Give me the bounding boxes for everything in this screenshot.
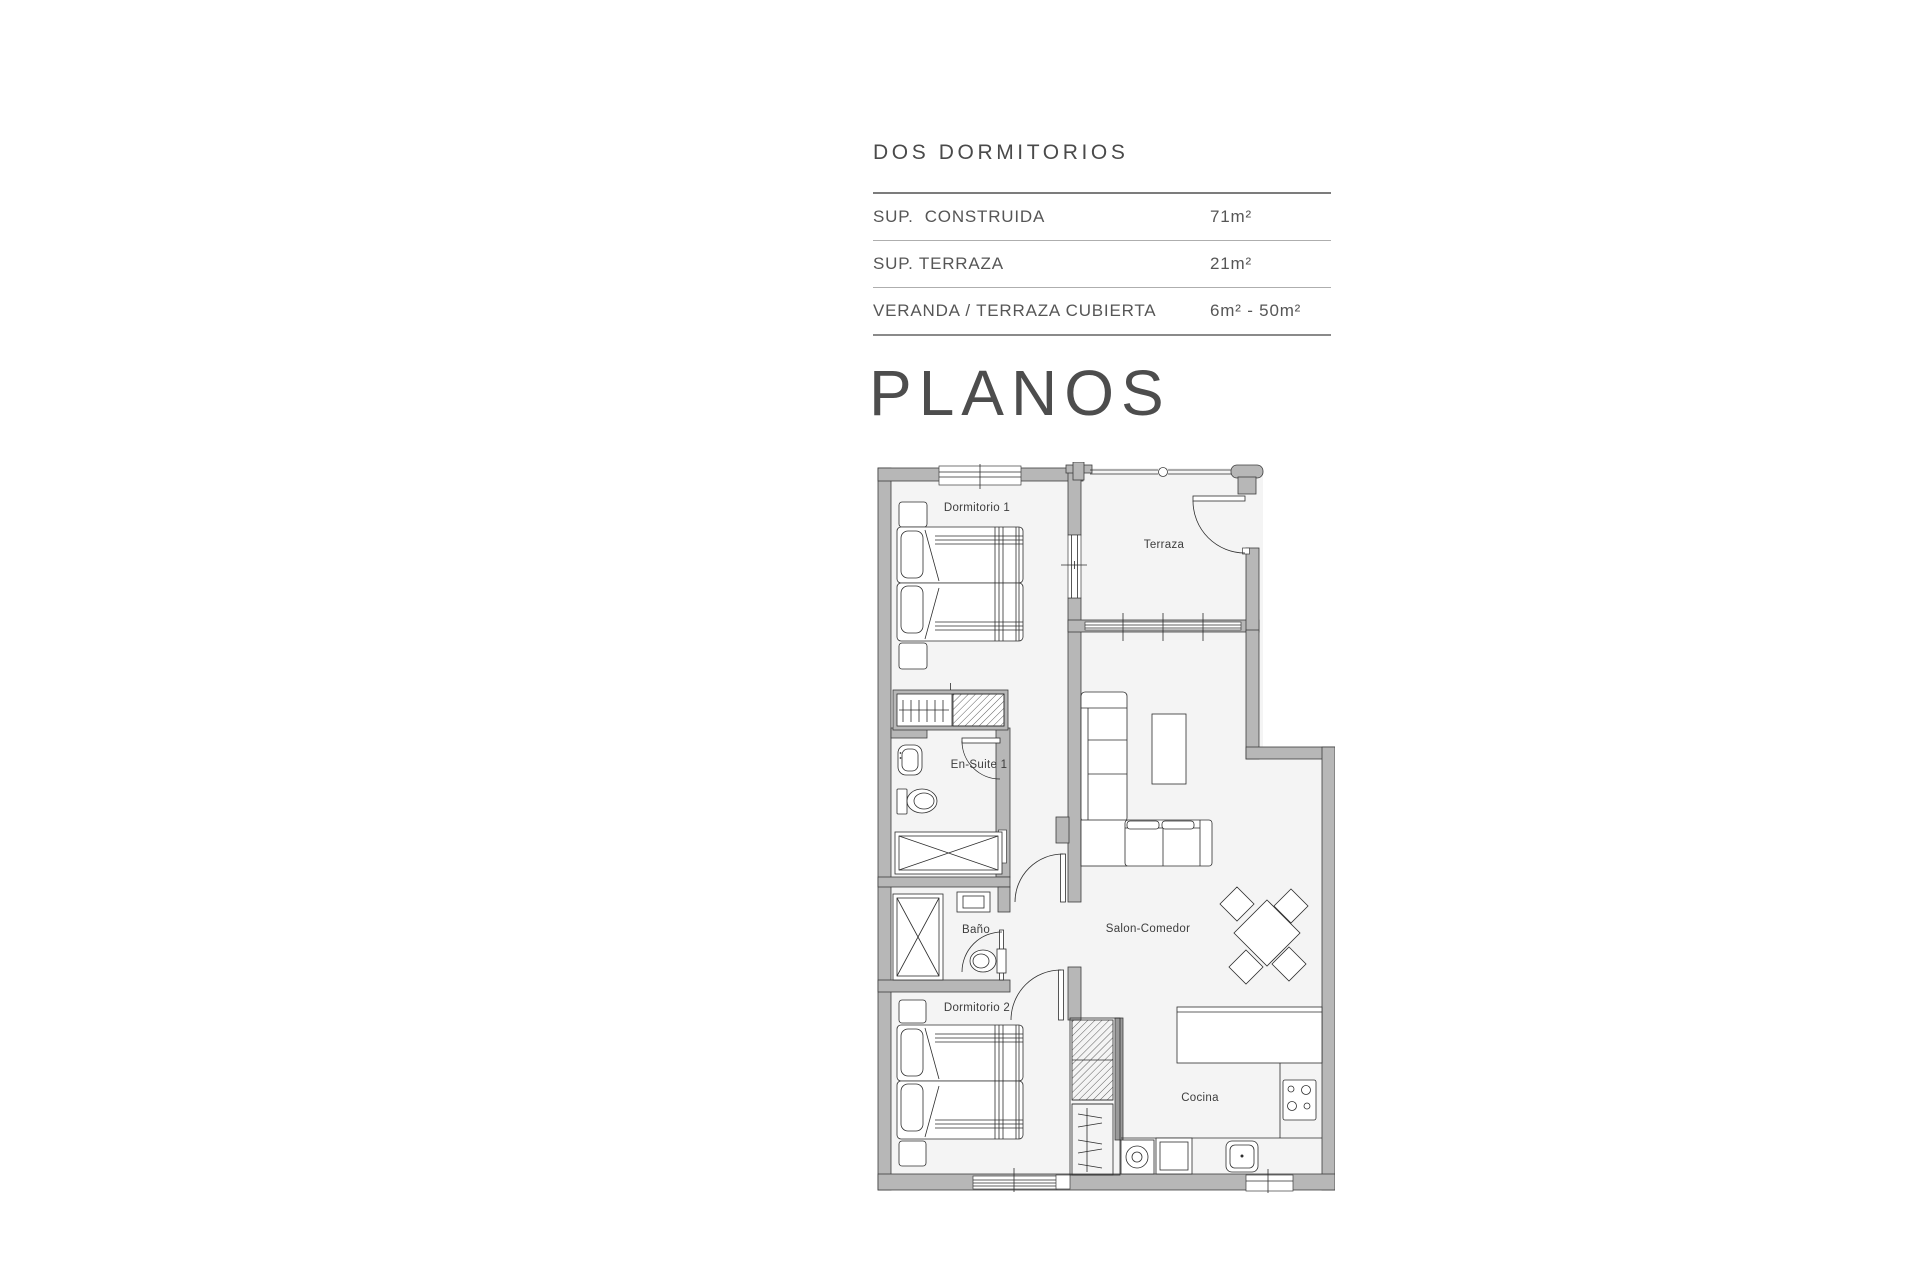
- pillow: [901, 1084, 923, 1131]
- kitchen-sink: [1226, 1141, 1258, 1172]
- spec-label: SUP. TERRAZA: [873, 254, 1004, 274]
- room-label-ensuite1: En-Suite 1: [951, 759, 1008, 771]
- room-label-dormitorio2: Dormitorio 2: [944, 1002, 1010, 1014]
- window-small-gap: [1056, 1175, 1070, 1189]
- toilet: [897, 789, 937, 814]
- floor-plan-svg: Dormitorio 1 Terraza En-Suite 1 Baño Sal…: [875, 462, 1335, 1194]
- spec-label: SUP. CONSTRUIDA: [873, 207, 1045, 227]
- terrace-column: [1159, 468, 1168, 477]
- room-label-cocina: Cocina: [1181, 1092, 1219, 1104]
- spec-value: 71m²: [1210, 207, 1252, 227]
- washing-machine: [1121, 1140, 1154, 1174]
- page-title: DOS DORMITORIOS: [873, 141, 1331, 165]
- shower-tray: [893, 894, 943, 980]
- wall-niche: [957, 892, 990, 912]
- nightstand: [899, 1141, 926, 1166]
- pillow: [901, 1029, 923, 1076]
- spec-summary: DOS DORMITORIOS SUP. CONSTRUIDA 71m² SUP…: [873, 141, 1331, 336]
- plans-heading: PLANOS: [869, 356, 1171, 430]
- window-dormitorio1: [939, 464, 1021, 489]
- nightstand: [899, 643, 927, 669]
- pillow: [901, 531, 923, 578]
- spec-row-veranda-area: VERANDA / TERRAZA CUBIERTA 6m² - 50m²: [873, 287, 1331, 334]
- side-table: [1152, 714, 1186, 784]
- room-label-salon: Salon-Comedor: [1106, 923, 1190, 935]
- spec-row-built-area: SUP. CONSTRUIDA 71m²: [873, 194, 1331, 240]
- brochure-page: { "page": { "background": "#ffffff" }, "…: [0, 0, 1920, 1280]
- toilet: [970, 949, 1006, 973]
- sink: [898, 745, 922, 775]
- nightstand: [899, 1000, 926, 1023]
- spec-table: SUP. CONSTRUIDA 71m² SUP. TERRAZA 21m² V…: [873, 192, 1331, 336]
- shower-tray: [895, 832, 1002, 874]
- stove: [1283, 1080, 1316, 1120]
- room-label-bano: Baño: [962, 924, 990, 936]
- room-label-dormitorio1: Dormitorio 1: [944, 502, 1010, 514]
- kitchen-island: [1177, 1007, 1322, 1063]
- pillow: [901, 586, 923, 633]
- spec-row-terrace-area: SUP. TERRAZA 21m²: [873, 240, 1331, 287]
- room-label-terraza: Terraza: [1144, 539, 1185, 551]
- floor-plan: Dormitorio 1 Terraza En-Suite 1 Baño Sal…: [875, 462, 1335, 1194]
- spec-value: 6m² - 50m²: [1210, 301, 1301, 321]
- spec-value: 21m²: [1210, 254, 1252, 274]
- dishwasher: [1156, 1138, 1192, 1174]
- wardrobe-dormitorio1: [893, 683, 1008, 730]
- spec-label: VERANDA / TERRAZA CUBIERTA: [873, 301, 1156, 321]
- nightstand: [899, 502, 927, 527]
- terrace-pillar-right: [1231, 465, 1263, 478]
